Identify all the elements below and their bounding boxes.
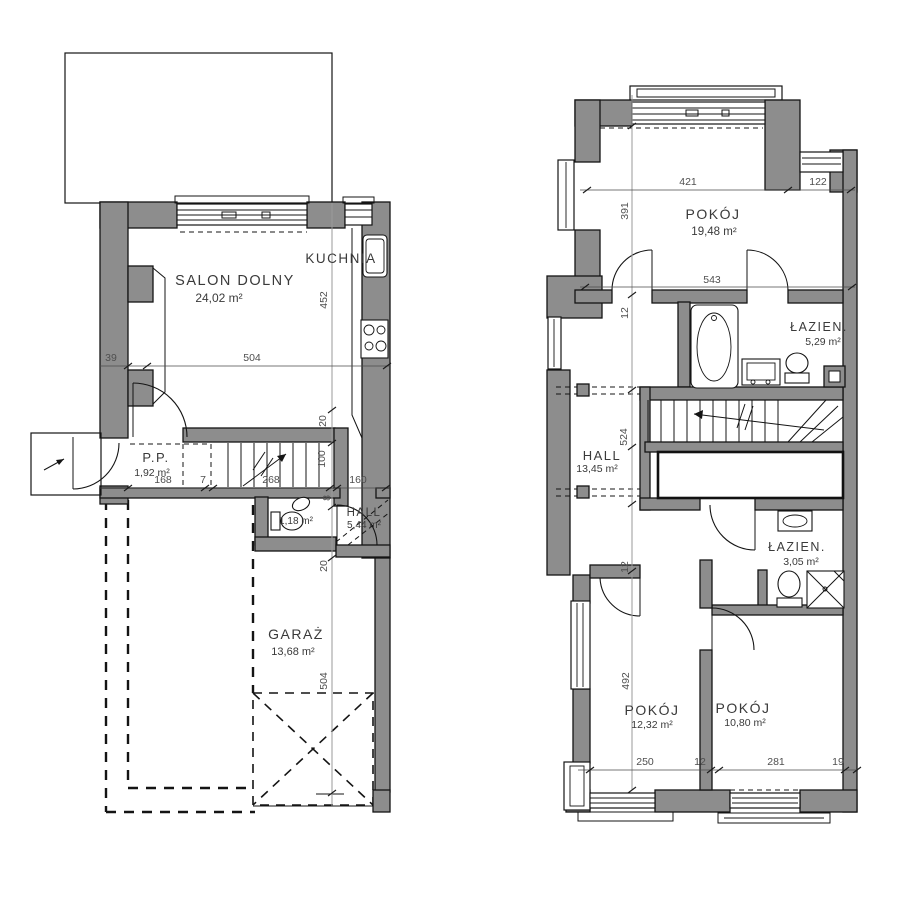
lazienka2-area: 3,05 m²	[783, 556, 819, 568]
pokoj2-label: POKÓJ	[625, 702, 680, 718]
dim-100: 100	[316, 450, 328, 468]
dim-504: 504	[243, 352, 261, 364]
left-window-3	[571, 601, 590, 689]
dim-12-mid: 12	[694, 756, 706, 768]
pokoj1-label: POKÓJ	[686, 206, 741, 222]
salon-window	[177, 204, 307, 225]
chimney-block-bottom	[128, 370, 153, 406]
wc-area: 1,18 m²	[279, 516, 314, 527]
dim-122: 122	[809, 176, 827, 188]
bottom-window-left	[590, 793, 655, 808]
dim-168: 168	[154, 474, 172, 486]
dim-504-garage: 504	[318, 672, 330, 690]
pokoj1-door-right	[747, 250, 788, 290]
pokoj3-area: 10,80 m²	[724, 717, 766, 729]
upper-floor-plan: POKÓJ 19,48 m² ŁAZIEN. 5,29 m² HALL 13,4…	[547, 86, 861, 823]
stairwell-void	[658, 452, 843, 498]
garaz-label: GARAŻ	[268, 625, 324, 642]
pokoj1-area: 19,48 m²	[691, 226, 737, 238]
kuchnia-label: KUCHNIA	[305, 251, 376, 266]
left-window-2	[548, 317, 561, 369]
bottom-window-right	[730, 793, 800, 808]
corner-window	[564, 762, 590, 810]
corridor-door	[710, 505, 755, 550]
pp-label: P.P.	[142, 450, 169, 465]
dim-20-garage: 20	[318, 560, 330, 572]
dim-391: 391	[619, 202, 631, 220]
pokoj2-area: 12,32 m²	[631, 719, 673, 731]
dim-12-bottom: 12	[619, 561, 631, 573]
lazienka1-label: ŁAZIEN.	[790, 320, 848, 334]
ground-floor-plan: SALON DOLNY 24,02 m² KUCHNIA P.P. 1,92 m…	[31, 53, 391, 812]
entrance-door	[73, 443, 119, 489]
pokoj2-door	[600, 578, 640, 616]
salon-area: 24,02 m²	[195, 291, 242, 305]
upper-stairs	[648, 400, 843, 442]
dim-452: 452	[318, 291, 330, 309]
garage-gate-zone	[253, 693, 373, 806]
pokoj3-label: POKÓJ	[716, 700, 771, 716]
dim-8: 8	[321, 495, 333, 501]
dim-39: 39	[105, 352, 117, 364]
balcony-outline	[630, 86, 782, 100]
dim-19: 19	[832, 756, 844, 768]
dim-543: 543	[703, 274, 721, 286]
dim-12-top: 12	[619, 307, 631, 319]
toilet-upper-2	[778, 571, 800, 597]
dim-524: 524	[618, 428, 630, 446]
dim-268: 268	[262, 474, 280, 486]
chimney-niche	[153, 268, 165, 404]
driveway-dashed-outline	[106, 500, 255, 812]
hall-down-label: HALL	[347, 507, 382, 519]
terrace-outline	[65, 53, 332, 203]
hall-down-area: 5,44 m²	[347, 520, 382, 531]
dim-281: 281	[767, 756, 785, 768]
stove	[361, 320, 388, 358]
lazienka1-area: 5,29 m²	[805, 336, 841, 348]
bottom-sill-left	[578, 812, 673, 821]
dim-492: 492	[620, 672, 632, 690]
dim-250: 250	[636, 756, 654, 768]
hall-up-area: 13,45 m²	[576, 463, 618, 475]
garaz-area: 13,68 m²	[271, 646, 315, 658]
hall-up-label: HALL	[583, 448, 622, 463]
dim-7: 7	[200, 474, 206, 486]
floor-plan-drawing: SALON DOLNY 24,02 m² KUCHNIA P.P. 1,92 m…	[0, 0, 900, 900]
kitchen-window	[345, 204, 372, 225]
lazienka2-label: ŁAZIEN.	[768, 540, 826, 554]
niche-window	[800, 152, 843, 172]
dim-160: 160	[349, 474, 367, 486]
toilet-upper-1	[786, 353, 808, 373]
chimney-block-top	[128, 266, 153, 302]
salon-window-sill	[175, 196, 309, 203]
dim-421: 421	[679, 176, 697, 188]
dim-20-top: 20	[317, 415, 329, 427]
salon-label: SALON DOLNY	[175, 273, 295, 289]
floor-plan-svg: SALON DOLNY 24,02 m² KUCHNIA P.P. 1,92 m…	[0, 0, 900, 900]
